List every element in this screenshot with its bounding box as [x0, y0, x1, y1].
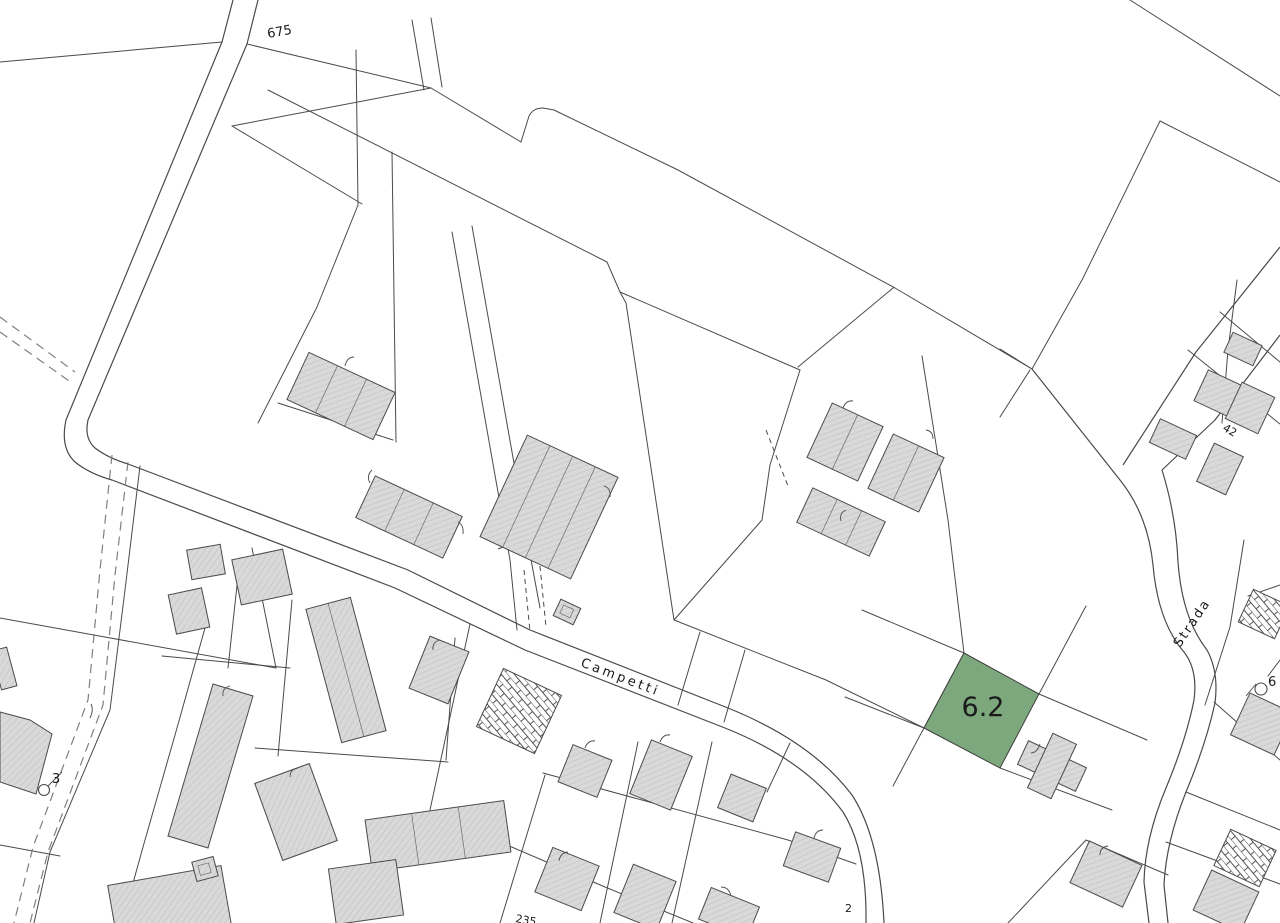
cadastral-map: 6.2 675 Campetti Strada 3 6 42 2 — [0, 0, 1280, 923]
brick-building-top-right — [1238, 589, 1280, 639]
buildings — [0, 332, 1280, 923]
label-survey-6: 6 — [1268, 675, 1276, 690]
brick-building-center — [476, 668, 561, 753]
label-2: 2 — [845, 902, 852, 915]
label-675: 675 — [266, 23, 293, 42]
survey-point-circle-right — [1255, 683, 1267, 695]
survey-point-circle-left — [39, 785, 50, 796]
label-235: 235 — [514, 912, 537, 923]
highlighted-parcel-label: 6.2 — [962, 692, 1005, 723]
label-street-strada: Strada — [1171, 596, 1214, 650]
label-survey-3: 3 — [52, 772, 60, 787]
brick-buildings — [476, 589, 1280, 886]
highlighted-parcel-6-2[interactable]: 6.2 — [924, 653, 1039, 768]
cross-shaped-building — [1010, 725, 1093, 806]
cadastral-map-viewport: 6.2 675 Campetti Strada 3 6 42 2 — [0, 0, 1280, 923]
corner-ticks — [90, 357, 1108, 896]
